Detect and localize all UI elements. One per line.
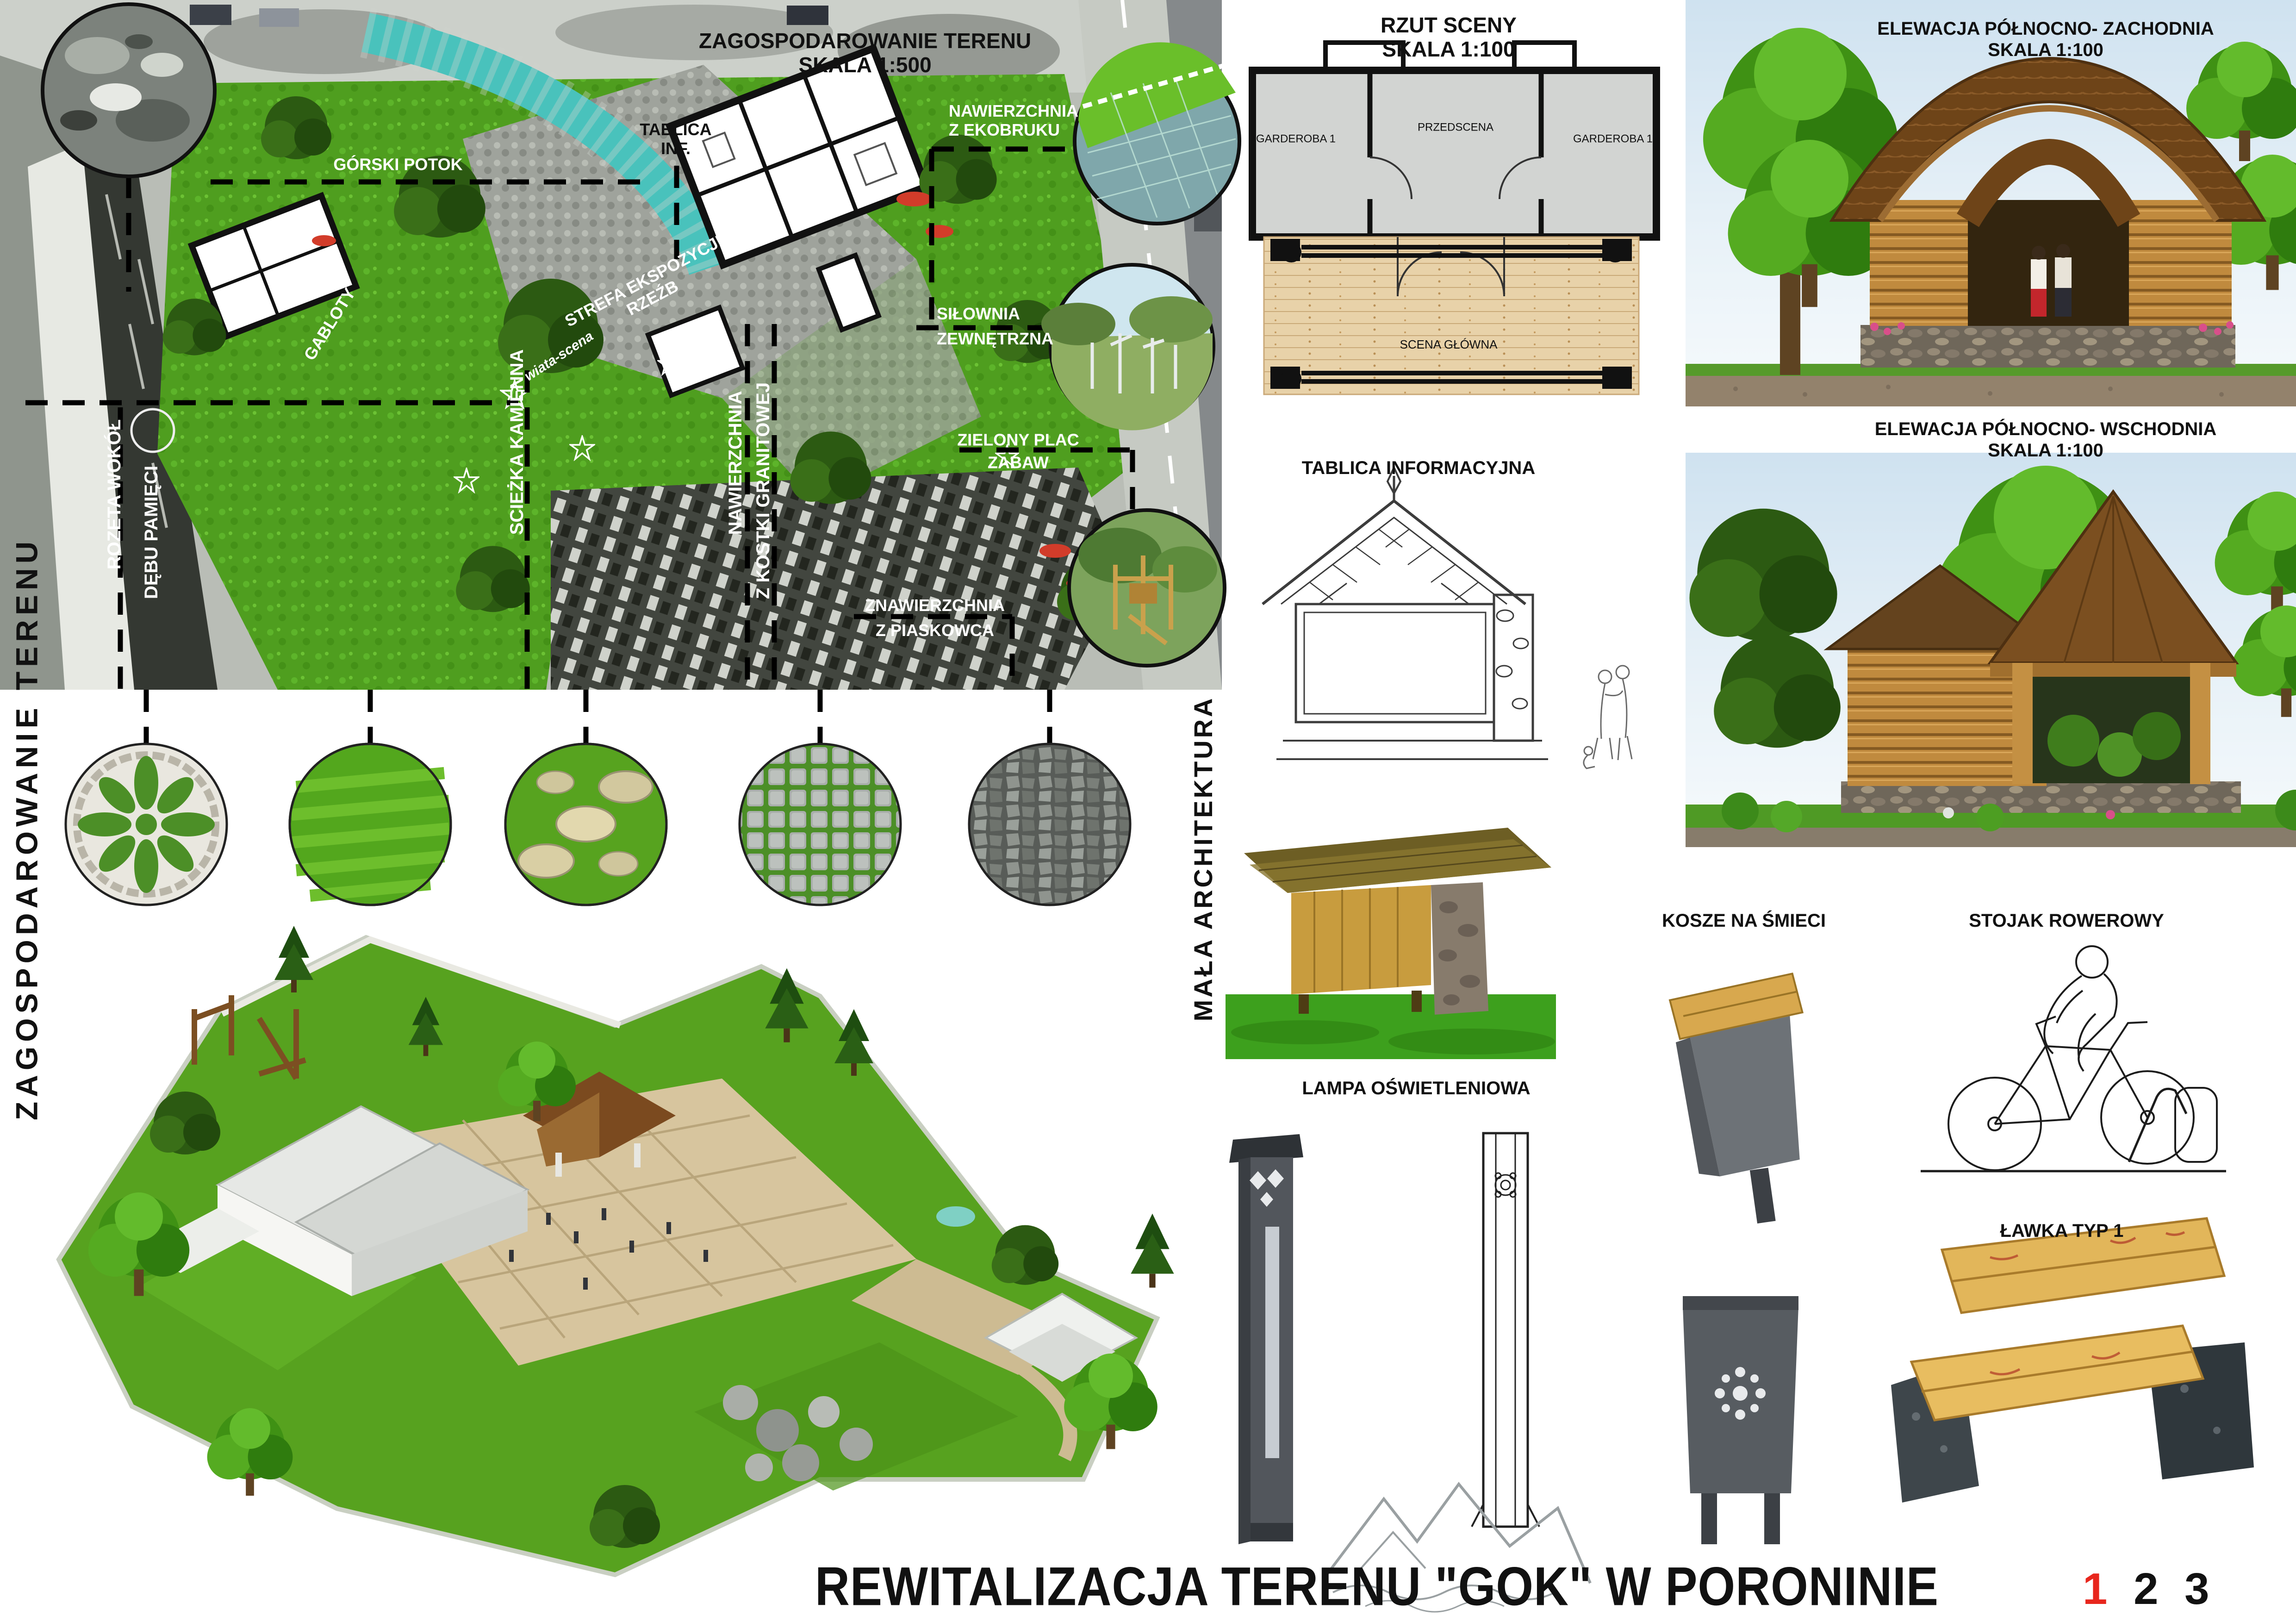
bins-title: KOSZE NA ŚMIECI xyxy=(1662,911,1826,932)
sample-lawn xyxy=(290,744,451,905)
photo-inset-playground xyxy=(1069,510,1225,666)
trash-bin-wood-lid xyxy=(1668,973,1830,1231)
info-board-title: TABLICA INFORMACYJNA xyxy=(1302,458,1535,479)
page-number-1[interactable]: 1 xyxy=(2083,1564,2107,1614)
side-heading: ZAGOSPODAROWANIE TERENU xyxy=(9,537,44,1120)
site-plan-title: ZAGOSPODAROWANIE TERENU SKALA 1:500 xyxy=(699,29,1031,77)
sample-stepping-stones xyxy=(505,744,666,905)
site-plan-title-line: ZAGOSPODAROWANIE TERENU xyxy=(699,29,1031,53)
lamp-line-drawing xyxy=(1472,1133,1539,1527)
map-label-playground: ZIELONY PLAC ZABAW xyxy=(957,429,1079,474)
map-label-granite-2: Z KOSTKI GRANITOWEJ xyxy=(753,382,774,599)
photo-inset-river xyxy=(43,4,215,176)
bike-rack-title: STOJAK ROWEROWY xyxy=(1969,911,2164,932)
board-title: REWITALIZACJA TERENU "GOK" W PORONINIE xyxy=(815,1556,1939,1618)
map-label-gym: SIŁOWNIA ZEWNĘTRZNA xyxy=(937,301,1053,351)
page-numbers: 1 2 3 xyxy=(2069,1564,2209,1614)
bench-title: ŁAWKA TYP 1 xyxy=(2000,1221,2124,1242)
stage-plan-title: RZUT SCENY SKALA 1:100 xyxy=(1356,13,1541,62)
map-label-stream: GÓRSKI POTOK xyxy=(333,155,462,174)
bench-render xyxy=(1891,1218,2254,1503)
map-label-sandstone: ZNAWIERZCHNIA Z PIASKOWCA xyxy=(865,593,1005,643)
elevation-ne-render xyxy=(1686,453,2296,847)
elevation-nw-render xyxy=(1686,0,2296,406)
room-label-center: PRZEDSCENA xyxy=(1418,121,1493,133)
room-label-left: GARDEROBA 1 xyxy=(1256,132,1336,145)
stage-label: SCENA GŁÓWNA xyxy=(1400,338,1498,352)
sample-rosette xyxy=(66,744,227,905)
map-label-granite-1: NAWIERZCHNIA xyxy=(725,391,747,535)
map-label-info-board: TABLICA INF. xyxy=(640,120,711,158)
section-heading-small-architecture: MAŁA ARCHITEKTURA xyxy=(1188,696,1218,1022)
trash-bin-rosette xyxy=(1683,1296,1798,1544)
bike-rack-drawing xyxy=(1921,946,2226,1171)
map-label-ecopaver: NAWIERZCHNIA Z EKOBRUKU xyxy=(949,101,1078,139)
page-number-3[interactable]: 3 xyxy=(2184,1564,2209,1614)
map-label-stone-path: SCIEŻKA KAMIENNA xyxy=(507,349,528,535)
lamp-title: LAMPA OŚWIETLENIOWA xyxy=(1302,1078,1530,1099)
map-label-rosette-2: DĘBU PAMIĘCI xyxy=(141,466,162,599)
elevation-nw-title: ELEWACJA PÓŁNOCNO- ZACHODNIA SKALA 1:100 xyxy=(1833,19,2259,61)
page-number-2[interactable]: 2 xyxy=(2134,1564,2158,1614)
info-board-drawing xyxy=(1263,468,1632,768)
sample-granite-setts xyxy=(740,744,901,905)
info-board-render xyxy=(1226,828,1556,1059)
sample-flagstone xyxy=(969,744,1130,905)
site-plan-scale: SKALA 1:500 xyxy=(699,53,1031,77)
lamp-render xyxy=(1229,1134,1303,1544)
elevation-ne-title: ELEWACJA PÓŁNOCNO- WSCHODNIA SKALA 1:100 xyxy=(1833,419,2259,461)
board-artwork xyxy=(0,0,2296,1622)
room-label-right: GARDEROBA 1 xyxy=(1573,132,1653,145)
map-label-rosette-1: ROZETA WOKÓŁ xyxy=(104,419,125,569)
axonometric-view xyxy=(59,926,1174,1575)
material-samples xyxy=(66,744,1130,905)
